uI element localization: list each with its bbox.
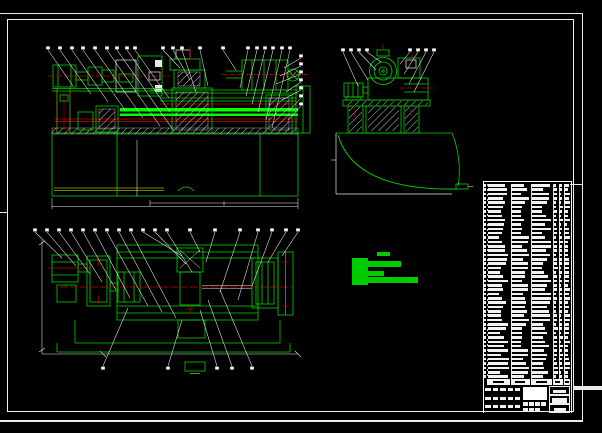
bom-cell-text [488,280,508,283]
bom-cell-text [564,210,568,213]
bom-cell-text [532,236,545,239]
bom-cell-text [559,254,561,257]
bom-cell-text [488,375,508,378]
bom-cell-text [488,306,504,309]
title-block-revision-cell [508,405,514,408]
bom-cell-text [488,327,506,330]
bom-cell-text [484,271,486,274]
bom-cell-text [559,327,561,330]
bom-cell-text [554,341,557,344]
title-block-revision-cell [508,397,514,400]
bom-cell-text [511,232,520,235]
title-block-revision-cell [515,388,521,391]
title-block-signature-text [552,398,567,403]
callout-balloon [299,62,303,65]
callout-balloon [93,228,97,231]
bom-cell-text [532,288,545,291]
bom-cell-text [554,193,557,196]
bom-cell-text [554,201,557,204]
bom-cell-text [484,314,486,317]
bom-cell-text [559,349,562,352]
cross-slide-plan [177,248,205,338]
bom-cell-text [564,267,568,270]
bom-cell-text [511,284,527,287]
bom-cell-text [559,288,562,291]
bom-cell-text [484,215,486,218]
bom-cell-text [488,358,509,361]
bom-cell-text [559,245,562,248]
bom-cell-text [532,362,543,365]
bom-cell-text [511,297,525,300]
bom-cell-text [532,232,542,235]
bom-cell-text [564,241,568,244]
bom-cell-text [532,188,543,191]
bom-cell-text [532,193,549,196]
bom-cell-text [511,323,525,326]
callout-balloon [125,46,129,49]
bom-cell-text [511,223,520,226]
bom-cell-text [564,345,567,348]
bom-cell-text [484,367,486,370]
callout-balloon [93,46,97,49]
side-view [331,44,473,194]
bom-cell-text [488,267,502,270]
bom-cell-text [532,249,547,252]
bom-cell-text [559,280,562,283]
leader-line [107,232,148,306]
bom-cell-text [488,345,505,348]
bom-cell-text [488,210,501,213]
bom-cell-text [511,201,525,204]
bom-cell-text [564,327,569,330]
bom-cell-text [484,193,486,196]
bom-header-label [515,381,525,384]
bom-cell-text [559,301,561,304]
bom-cell-text [484,349,486,352]
leader-line [48,50,73,86]
leader-line [343,52,358,86]
bom-cell-text [564,354,567,357]
bom-cell-text [559,201,561,204]
bom-cell-text [532,327,546,330]
bom-cell-text [511,310,526,313]
bom-cell-text [559,310,561,313]
bom-cell-text [532,332,547,335]
bom-cell-text [532,367,544,370]
bom-cell-text [532,341,545,344]
callout-balloon [280,46,284,49]
callout-balloon [180,46,184,49]
callout-balloon [424,48,428,51]
bom-cell-text [488,275,503,278]
bom-cell-text [559,267,561,270]
bom-cell-text [484,280,486,283]
bom-cell-text [559,354,562,357]
bom-header-label [565,381,568,384]
bom-cell-text [488,319,502,322]
bom-cell-text [554,236,557,239]
bom-cell-text [532,197,550,200]
bom-cell-text [484,223,486,226]
bom-cell-text [564,367,569,370]
bom-cell-text [484,228,486,231]
bom-cell-text [554,323,556,326]
callout-balloon [408,48,412,51]
callout-balloon [341,48,345,51]
callout-balloon [230,367,234,370]
bom-cell-text [488,241,502,244]
bom-cell-text [488,354,501,357]
title-block-scale-cell [541,402,546,405]
headstock-end [368,54,434,100]
bom-cell-text [559,367,562,370]
bom-cell-text [559,375,561,378]
bom-cell-text [564,201,569,204]
bom-cell-text [484,358,486,361]
bom-cell-text [564,375,567,378]
leader-line [206,232,215,262]
bom-cell-text [511,258,523,261]
bom-cell-text [532,284,547,287]
title-block-drawing-number-zone [523,387,547,401]
bom-cell-text [532,271,544,274]
leader-line [223,50,236,70]
bom-cell-text [532,215,546,218]
bom-cell-text [554,215,557,218]
chip-tray [331,133,473,194]
bom-cell-text [559,358,561,361]
drain-spout [456,184,468,189]
callout-balloon [133,46,137,49]
bom-cell-text [484,262,486,265]
leader-line [238,232,258,300]
bom-cell-text [532,297,551,300]
bom-cell-text [554,188,557,191]
bom-cell-text [564,249,568,252]
bom-cell-text [554,271,556,274]
bom-cell-text [554,332,557,335]
bom-cell-text [554,284,557,287]
bom-cell-text [532,336,543,339]
bom-cell-text [511,267,528,270]
bom-cell-text [532,375,543,378]
bom-cell-text [559,306,562,309]
bom-cell-text [488,284,502,287]
leader-line [268,232,286,262]
leader-line [240,50,248,88]
bom-cell-text [559,232,561,235]
motor-plan [48,255,92,302]
title-block-scale-cell [535,402,540,405]
bom-cell-text [559,236,562,239]
bom-cell-text [484,332,486,335]
bom-cell-text [559,258,561,261]
callout-balloon [45,228,49,231]
bom-cell-text [532,349,544,352]
bom-cell-text [488,288,503,291]
bom-cell-text [559,345,562,348]
tech-note-text-block [365,277,418,283]
title-block-revision-cell [493,405,499,408]
bom-cell-text [554,349,557,352]
callout-balloon [416,48,420,51]
bom-cell-text [554,314,557,317]
bom-cell-text [554,358,556,361]
bom-cell-text [488,236,499,239]
callout-balloon [161,46,165,49]
callout-balloon [299,78,303,81]
bom-cell-text [554,223,556,226]
bom-cell-text [484,197,486,200]
bom-cell-text [511,306,524,309]
pulley-housing [370,44,397,85]
bom-cell-text [564,245,568,248]
title-block-signature-box [549,404,570,413]
drawer-handle [178,187,194,191]
bom-cell-text [488,262,506,265]
bom-cell-text [559,275,561,278]
bom-cell-text [488,219,505,222]
tech-note-text-block [368,271,384,276]
bom-cell-text [532,319,550,322]
title-block-scale-cell [523,408,528,411]
title-block-scale-cell [529,408,534,411]
callout-balloon [33,228,37,231]
bom-cell-text [532,219,551,222]
bom-cell-text [511,193,521,196]
bom-cell-text [559,262,562,265]
tech-note-text-block [377,252,390,256]
bom-cell-text [559,371,561,374]
callout-balloon [105,228,109,231]
bom-cell-text [488,314,501,317]
bom-cell-text [488,184,505,187]
callout-balloons-and-leaders [33,46,436,369]
bom-cell-text [564,293,568,296]
bom-cell-text [488,271,500,274]
bom-cell-text [484,184,486,187]
bom-cell-text [511,188,526,191]
callout-balloon [57,228,61,231]
bom-cell-text [564,206,569,209]
callout-balloon [263,46,267,49]
callout-balloon [198,46,202,49]
bom-cell-text [488,232,502,235]
callout-balloon [141,228,145,231]
bom-cell-text [532,358,546,361]
leader-line [127,50,170,112]
bom-cell-text [484,336,486,339]
bom-cell-text [559,314,561,317]
cad-application-canvas: { "colors": { "background": "#000000", "… [0,0,602,433]
bom-cell-text [532,245,552,248]
title-block-scale-cell [523,402,528,405]
bom-cell-text [488,223,504,226]
callout-balloon [299,54,303,57]
bom-cell-text [554,362,557,365]
bom-cell-text [488,228,503,231]
callout-balloon [238,228,242,231]
bom-cell-text [511,210,521,213]
bom-cell-text [554,319,557,322]
bom-cell-text [488,188,507,191]
bom-cell-text [484,245,486,248]
title-block-revision-cell [500,388,506,391]
bom-cell-text [554,280,557,283]
bom-row-area [484,184,572,380]
bom-cell-text [511,341,520,344]
tailstock [222,60,310,133]
bom-cell-text [484,341,486,344]
front-dimension-lines [52,140,298,209]
bom-cell-text [488,362,508,365]
bom-cell-text [532,306,547,309]
bom-header-label [536,381,547,384]
leader-line [190,232,200,252]
bom-cell-text [559,249,562,252]
bom-cell-text [554,254,556,257]
bom-cell-text [554,310,556,313]
bom-cell-text [559,219,562,222]
bom-cell-text [559,188,562,191]
bom-cell-text [488,258,507,261]
bom-cell-text [559,223,561,226]
bom-cell-text [564,319,569,322]
bom-cell-text [559,206,562,209]
callout-balloon [46,46,50,49]
bom-cell-text [488,323,508,326]
bom-cell-text [554,306,557,309]
bom-cell-text [511,367,529,370]
title-block-revision-cell [508,388,514,391]
callout-balloon [299,94,303,97]
title-block-revision-cell [500,397,506,400]
bom-cell-text [488,197,503,200]
bom-cell-text [559,336,562,339]
bom-cell-text [484,258,486,261]
bom-cell-text [511,301,525,304]
bom-cell-text [484,249,486,252]
bom-cell-text [554,345,557,348]
callout-balloon [105,46,109,49]
bom-cell-text [564,336,568,339]
bom-cell-text [559,271,562,274]
front-view [48,46,310,209]
title-block-revision-cell [485,397,491,400]
bom-cell-text [554,241,557,244]
bom-cell-text [532,241,551,244]
bom-cell-text [554,232,557,235]
bom-cell-text [564,215,567,218]
bom-cell-text [564,314,569,317]
bom-cell-text [554,245,557,248]
bom-cell-text [511,349,528,352]
bom-cell-text [484,232,486,235]
front-base-cabinet [52,133,298,196]
bom-cell-text [484,241,486,244]
bom-cell-text [532,345,549,348]
bom-cell-text [488,249,506,252]
bom-cell-text [532,371,549,374]
bom-cell-text [511,241,528,244]
callout-balloon [81,228,85,231]
bom-cell-text [532,201,547,204]
callout-balloon [101,367,105,370]
title-block-revision-cell [515,397,521,400]
bench-legs [348,106,419,133]
bom-cell-text [511,219,523,222]
bom-cell-text [564,280,569,283]
callout-balloon [129,228,133,231]
bom-cell-text [484,310,486,313]
bom-cell-text [484,297,486,300]
bom-cell-text [484,323,486,326]
bom-cell-text [488,297,502,300]
tech-note-text-block [368,261,401,267]
callout-balloon [288,46,292,49]
bom-cell-text [554,267,558,270]
callout-balloon [165,228,169,231]
bom-cell-text [511,332,522,335]
title-block [484,385,572,413]
callout-balloon [299,102,303,105]
leader-line [220,290,252,366]
bom-cell-text [484,319,486,322]
title-block-signature-box [549,395,570,404]
bom-cell-text [559,210,562,213]
bom-cell-text [532,206,542,209]
title-block-signature-text [554,408,566,412]
callout-balloon [357,48,361,51]
bom-cell-text [511,293,522,296]
callout-balloon [250,367,254,370]
bom-cell-text [511,215,521,218]
motor [344,83,368,100]
bom-cell-text [511,358,522,361]
callout-balloon [58,46,62,49]
bom-cell-text [484,236,486,239]
carriage [170,46,212,133]
callout-balloon [115,46,119,49]
leader-line [252,50,265,104]
bom-cell-text [511,280,522,283]
bom-cell-text [511,375,524,378]
bom-cell-text [484,288,486,291]
callout-balloon [213,228,217,231]
bom-cell-text [554,297,557,300]
bom-cell-text [511,288,528,291]
bom-cell-text [564,258,568,261]
bom-cell-text [564,288,569,291]
bom-cell-text [532,323,543,326]
bom-cell-text [554,354,557,357]
callout-balloon [349,48,353,51]
bom-cell-text [532,314,550,317]
bom-cell-text [564,193,570,196]
bom-cell-text [511,336,522,339]
leader-line [220,232,240,292]
title-block-scale-cell [535,408,540,411]
bom-cell-text [564,341,569,344]
bom-cell-text [564,232,569,235]
bom-cell-text [564,284,568,287]
bom-cell-text [484,293,486,296]
bom-cell-text [511,345,520,348]
callout-balloon [221,46,225,49]
bom-cell-text [554,371,558,374]
bom-parts-table [483,181,572,413]
callout-balloon [432,48,436,51]
